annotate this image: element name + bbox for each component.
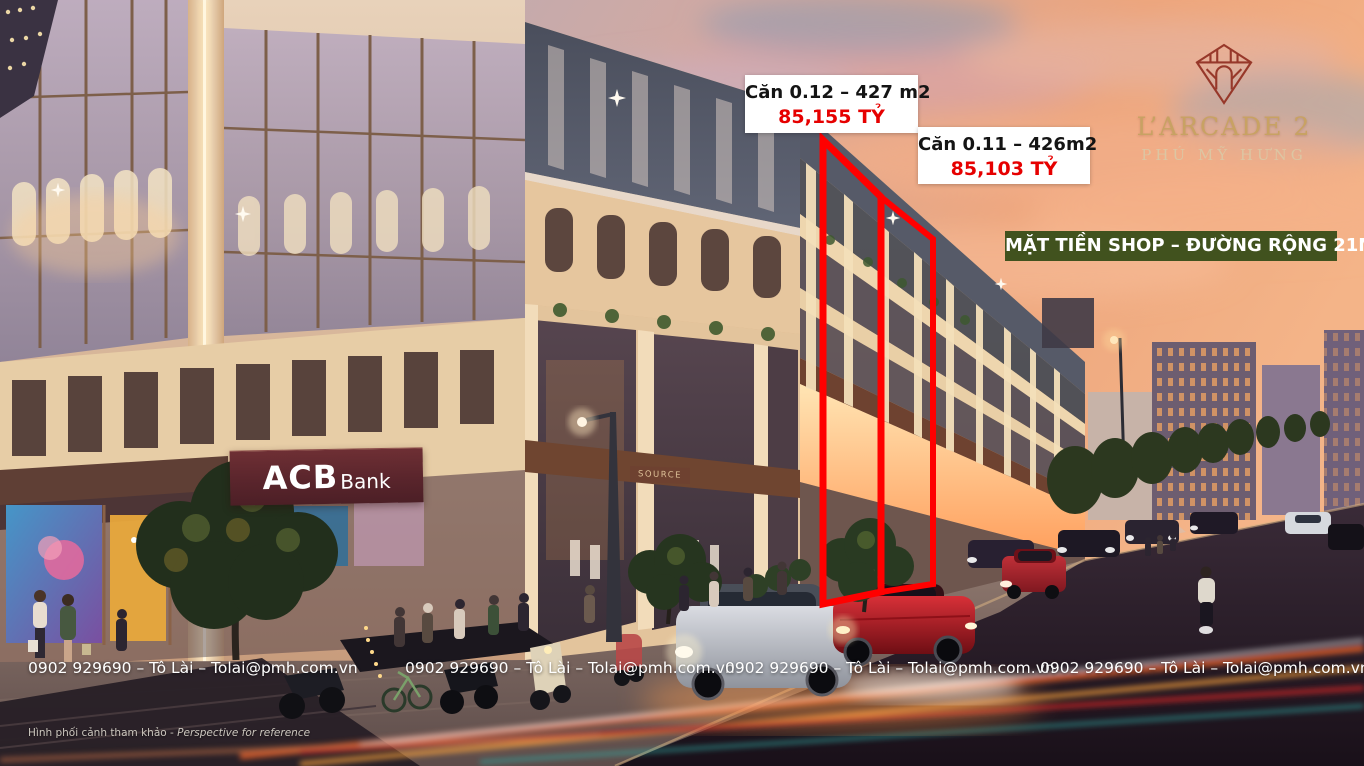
unit-012-label: Căn 0.12 – 427 m2 85,155 TỶ	[745, 75, 918, 133]
contact-info-3: 0902 929690 – Tô Lài – Tolai@pmh.com.vn	[725, 659, 1055, 677]
unit-011-price: 85,103 TỶ	[918, 157, 1090, 181]
red-car	[1000, 549, 1066, 599]
perspective-disclaimer: Hình phối cảnh tham khảo - Perspective f…	[28, 727, 310, 739]
diamond-emblem-icon	[1195, 42, 1253, 106]
unit-011-name: Căn 0.11 – 426m2	[918, 133, 1090, 157]
logo-title: L’ARCADE 2	[1128, 112, 1320, 141]
contact-info-2: 0902 929690 – Tô Lài – Tolai@pmh.com.vn	[405, 659, 735, 677]
marketing-slide: ACB Bank SOURCE Căn 0.12 – 427 m2 85,155…	[0, 0, 1364, 766]
logo-subtitle: PHÚ MỸ HƯNG	[1128, 146, 1320, 164]
acb-suffix-text: Bank	[340, 461, 391, 491]
frontage-banner: MẶT TIỀN SHOP – ĐƯỜNG RỘNG 21M	[1005, 231, 1337, 261]
project-logo: L’ARCADE 2 PHÚ MỸ HƯNG	[1128, 42, 1320, 164]
disclaimer-vietnamese: Hình phối cảnh tham khảo -	[28, 727, 177, 739]
unit-011-label: Căn 0.11 – 426m2 85,103 TỶ	[918, 127, 1090, 184]
acb-brand-text: ACB	[262, 461, 338, 494]
disclaimer-english: Perspective for reference	[177, 727, 310, 739]
shop-sign-source: SOURCE	[630, 466, 690, 484]
unit-012-name: Căn 0.12 – 427 m2	[745, 81, 918, 105]
acb-bank-sign: ACB Bank	[230, 447, 424, 505]
unit-012-price: 85,155 TỶ	[745, 105, 918, 129]
contact-info-1: 0902 929690 – Tô Lài – Tolai@pmh.com.vn	[28, 659, 358, 677]
contact-info-4: 0902 929690 – Tô Lài – Tolai@pmh.com.vn	[1040, 659, 1364, 677]
